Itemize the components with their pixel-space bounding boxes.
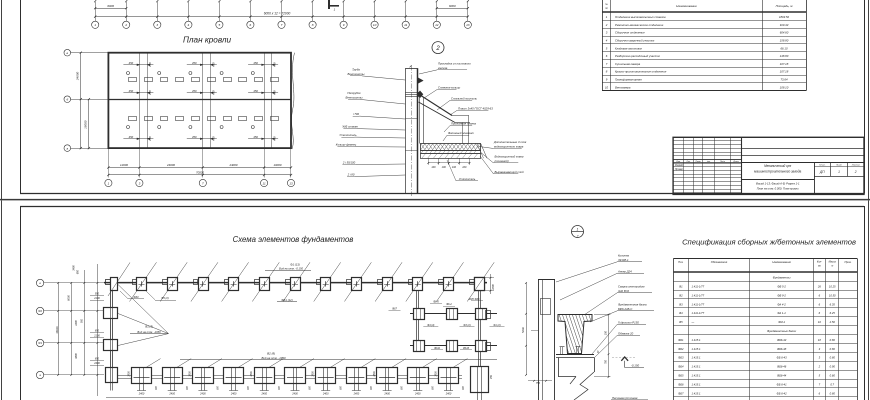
svg-text:ФВ 5-2: ФВ 5-2 bbox=[777, 285, 786, 289]
svg-text:4: 4 bbox=[188, 23, 190, 27]
svg-text:План кровли: План кровли bbox=[183, 35, 231, 44]
svg-text:2400: 2400 bbox=[93, 362, 100, 365]
svg-text:Разборочно-расходочный участок: Разборочно-расходочный участок bbox=[615, 54, 661, 58]
svg-text:5: 5 bbox=[819, 374, 821, 378]
svg-text:450: 450 bbox=[253, 135, 258, 139]
svg-text:Дата: Дата bbox=[732, 161, 739, 163]
svg-text:Ф6-6: Ф6-6 bbox=[433, 300, 439, 303]
svg-text:12: 12 bbox=[435, 23, 439, 27]
svg-text:10: 10 bbox=[373, 23, 377, 27]
svg-text:1.415.1: 1.415.1 bbox=[692, 365, 701, 369]
svg-text:1: 1 bbox=[606, 15, 608, 19]
svg-text:1800: 1800 bbox=[127, 371, 130, 377]
svg-text:600: 600 bbox=[218, 385, 220, 390]
svg-text:в: в bbox=[67, 51, 69, 55]
svg-text:1893.50: 1893.50 bbox=[779, 15, 790, 19]
svg-text:6000 x 12 = 72000: 6000 x 12 = 72000 bbox=[264, 12, 291, 16]
svg-text:ФБ1 (12): ФБ1 (12) bbox=[281, 298, 292, 302]
svg-text:850: 850 bbox=[95, 330, 100, 333]
svg-text:600: 600 bbox=[279, 385, 281, 390]
svg-text:8: 8 bbox=[312, 23, 314, 27]
svg-text:107.18: 107.18 bbox=[780, 62, 789, 66]
svg-text:Прижимная планка: Прижимная планка bbox=[451, 122, 476, 126]
svg-text:Утеплитель: Утеплитель bbox=[459, 177, 476, 181]
svg-text:1.415.1: 1.415.1 bbox=[692, 347, 701, 351]
svg-text:Лист: Лист bbox=[694, 161, 701, 163]
svg-text:т: т bbox=[831, 264, 833, 267]
svg-text:600: 600 bbox=[248, 385, 250, 390]
svg-text:1600: 1600 bbox=[75, 320, 78, 326]
svg-text:Поз.: Поз. bbox=[678, 260, 683, 264]
svg-text:1800: 1800 bbox=[250, 371, 253, 377]
svg-text:6000: 6000 bbox=[449, 4, 456, 8]
svg-text:1: 1 bbox=[838, 170, 840, 174]
svg-text:Сборочное отделение: Сборочное отделение bbox=[615, 31, 645, 35]
svg-text:Отделение высоковольтных станк: Отделение высоковольтных станков bbox=[615, 15, 666, 19]
svg-text:2400: 2400 bbox=[230, 392, 237, 395]
svg-text:План на отм. 0.000; План кровл: План на отм. 0.000; План кровли bbox=[757, 186, 799, 190]
svg-text:Кол-: Кол- bbox=[817, 261, 822, 264]
svg-text:ДП: ДП bbox=[819, 170, 825, 174]
svg-text:10: 10 bbox=[605, 85, 609, 89]
svg-text:ФБ6: ФБ6 bbox=[678, 382, 684, 386]
svg-text:Ф1 (3): Ф1 (3) bbox=[145, 325, 153, 329]
svg-text:Ф1 (13): Ф1 (13) bbox=[290, 262, 300, 266]
svg-text:БФ6-24Б-С: БФ6-24Б-С bbox=[618, 307, 633, 311]
svg-text:450: 450 bbox=[253, 61, 258, 65]
svg-text:Разраб.: Разраб. bbox=[675, 165, 684, 167]
svg-text:(основной): (основной) bbox=[495, 159, 509, 163]
svg-text:Трансформаторная: Трансформаторная bbox=[615, 78, 642, 82]
svg-text:6000: 6000 bbox=[107, 4, 114, 8]
svg-text:во: во bbox=[818, 264, 821, 267]
svg-text:машиностроительного завода: машиностроительного завода bbox=[754, 169, 801, 173]
svg-text:Фундаментные балки: Фундаментные балки bbox=[767, 329, 797, 333]
svg-text:2400: 2400 bbox=[199, 392, 206, 395]
svg-text:-0.150: -0.150 bbox=[631, 363, 640, 367]
svg-text:Песчаная (сточная: Песчаная (сточная bbox=[612, 396, 638, 400]
svg-text:450: 450 bbox=[490, 374, 493, 379]
svg-text:Ф67: Ф67 bbox=[392, 308, 397, 311]
svg-text:550: 550 bbox=[95, 292, 100, 295]
svg-text:Схема элементов фундаментов: Схема элементов фундаментов bbox=[233, 235, 354, 244]
svg-text:450: 450 bbox=[192, 61, 197, 65]
svg-text:24000: 24000 bbox=[76, 71, 80, 81]
svg-text:ФА 4-2: ФА 4-2 bbox=[777, 302, 786, 306]
svg-text:Обмазка 20: Обмазка 20 bbox=[618, 332, 634, 336]
svg-text:450: 450 bbox=[148, 136, 152, 141]
svg-text:5200: 5200 bbox=[521, 327, 525, 333]
svg-text:100: 100 bbox=[462, 166, 467, 169]
svg-text:158.80: 158.80 bbox=[780, 39, 789, 43]
svg-text:1.411-1/77: 1.411-1/77 bbox=[692, 311, 705, 315]
svg-text:Фасад 1-13; Фасад А-В; Разрез: Фасад 1-13; Фасад А-В; Разрез 1-1 bbox=[756, 181, 800, 185]
svg-text:5: 5 bbox=[606, 46, 608, 50]
svg-text:Ф2 (9): Ф2 (9) bbox=[267, 351, 275, 355]
svg-text:Площадь, м: Площадь, м bbox=[776, 4, 793, 8]
svg-text:600: 600 bbox=[371, 385, 373, 390]
svg-text:2400: 2400 bbox=[383, 392, 390, 395]
svg-text:а: а bbox=[66, 146, 68, 150]
svg-text:12000: 12000 bbox=[120, 163, 128, 167]
svg-text:Ф5: Ф5 bbox=[679, 320, 683, 324]
svg-text:0.80: 0.80 bbox=[830, 347, 836, 351]
svg-text:600: 600 bbox=[187, 385, 189, 390]
svg-text:ФМ-1: ФМ-1 bbox=[778, 320, 785, 324]
svg-text:Масса: Масса bbox=[829, 261, 837, 264]
svg-text:Ф4: Ф4 bbox=[679, 311, 683, 315]
svg-text:6.25: 6.25 bbox=[830, 311, 836, 315]
svg-text:1.411-1/77: 1.411-1/77 bbox=[692, 302, 705, 306]
svg-text:108.10: 108.10 bbox=[780, 85, 789, 89]
svg-text:600: 600 bbox=[340, 385, 342, 390]
svg-text:450: 450 bbox=[211, 90, 215, 95]
svg-text:ФБ 6-41: ФБ 6-41 bbox=[777, 382, 788, 386]
svg-text:2: 2 bbox=[435, 46, 440, 52]
svg-text:0.7: 0.7 bbox=[830, 382, 834, 386]
svg-text:450: 450 bbox=[129, 61, 134, 65]
svg-text:ФБ6-43: ФБ6-43 bbox=[777, 338, 787, 342]
svg-text:73.64: 73.64 bbox=[781, 78, 788, 82]
svg-text:1800: 1800 bbox=[312, 371, 315, 377]
svg-text:ФБ1: ФБ1 bbox=[678, 338, 684, 342]
svg-text:6: 6 bbox=[250, 23, 252, 27]
svg-text:2: 2 bbox=[854, 170, 857, 174]
svg-text:1.411-1/77: 1.411-1/77 bbox=[692, 285, 705, 289]
svg-text:Кладовая заготовок: Кладовая заготовок bbox=[615, 46, 643, 50]
svg-text:500: 500 bbox=[81, 318, 84, 323]
svg-text:6.35: 6.35 bbox=[830, 302, 836, 306]
svg-text:водозащитного ковра: водозащитного ковра bbox=[494, 144, 524, 148]
svg-text:Лист: Лист bbox=[835, 165, 842, 167]
svg-text:б: б bbox=[66, 97, 68, 101]
svg-text:11: 11 bbox=[404, 23, 407, 27]
svg-text:10.50: 10.50 bbox=[829, 293, 836, 297]
svg-text:2: 2 bbox=[124, 23, 127, 27]
svg-text:9800: 9800 bbox=[75, 353, 78, 359]
svg-text:6: 6 bbox=[819, 391, 821, 395]
svg-text:Ж/Б стакан: Ж/Б стакан bbox=[341, 125, 358, 129]
svg-text:Выравнивающий слой: Выравнивающий слой bbox=[495, 170, 524, 174]
svg-text:Механический цех: Механический цех bbox=[764, 164, 792, 168]
svg-text:ФБ6-46: ФБ6-46 bbox=[777, 365, 787, 369]
svg-text:107.18: 107.18 bbox=[780, 70, 789, 74]
svg-text:70000: 70000 bbox=[196, 171, 204, 175]
svg-text:3: 3 bbox=[606, 31, 608, 35]
svg-text:26: 26 bbox=[817, 285, 821, 289]
svg-text:Утеплитель: Утеплитель bbox=[339, 133, 357, 137]
svg-text:ФБ4: ФБ4 bbox=[678, 365, 684, 369]
svg-text:100: 100 bbox=[431, 166, 436, 169]
svg-text:1.415.1: 1.415.1 bbox=[692, 391, 701, 395]
svg-text:604.60: 604.60 bbox=[780, 31, 789, 35]
svg-text:9: 9 bbox=[606, 78, 608, 82]
svg-text:3: 3 bbox=[139, 181, 141, 185]
svg-text:850: 850 bbox=[95, 357, 100, 360]
svg-text:450: 450 bbox=[192, 135, 197, 139]
svg-text:100: 100 bbox=[452, 166, 457, 169]
svg-text:в: в bbox=[39, 282, 41, 285]
svg-text:0.60: 0.60 bbox=[830, 374, 836, 378]
svg-text:10.25: 10.25 bbox=[829, 285, 836, 289]
svg-text:Сборочно-сварочный участок: Сборочно-сварочный участок bbox=[615, 39, 655, 43]
svg-text:Ф6-2: Ф6-2 bbox=[446, 303, 452, 306]
svg-text:10000: 10000 bbox=[273, 163, 281, 167]
svg-text:450: 450 bbox=[273, 90, 277, 95]
svg-text:910.43: 910.43 bbox=[780, 23, 789, 27]
svg-text:6: 6 bbox=[606, 54, 608, 58]
svg-text:66.10: 66.10 bbox=[781, 46, 788, 50]
svg-text:Ф1: Ф1 bbox=[679, 285, 683, 289]
svg-text:1800: 1800 bbox=[434, 371, 437, 377]
svg-text:ФБ6-44: ФБ6-44 bbox=[777, 374, 787, 378]
svg-text:2.50: 2.50 bbox=[829, 320, 836, 324]
svg-text:600: 600 bbox=[156, 385, 158, 390]
svg-text:1: 1 bbox=[94, 23, 96, 27]
svg-text:ФБ6-48: ФБ6-48 bbox=[777, 347, 787, 351]
svg-text:2: 2 bbox=[818, 365, 821, 369]
svg-text:2 i 80: 2 i 80 bbox=[347, 173, 355, 177]
svg-text:Ф2: Ф2 bbox=[679, 293, 683, 297]
svg-text:Ф5 (2): Ф5 (2) bbox=[161, 296, 169, 300]
svg-text:б/2: б/2 bbox=[38, 309, 42, 313]
svg-text:2400: 2400 bbox=[322, 392, 329, 395]
svg-text:600: 600 bbox=[402, 385, 404, 390]
svg-text:Стальной костыль: Стальной костыль bbox=[451, 96, 478, 100]
svg-text:600: 600 bbox=[432, 385, 434, 390]
svg-text:36000: 36000 bbox=[55, 326, 59, 334]
svg-text:ФБ 6-42: ФБ 6-42 bbox=[777, 391, 788, 395]
svg-text:—: — bbox=[691, 321, 695, 324]
svg-text:Краско-приготовительное отделе: Краско-приготовительное отделение bbox=[615, 70, 667, 74]
svg-text:пп: пп bbox=[605, 7, 608, 10]
svg-text:i 700: i 700 bbox=[353, 112, 360, 116]
svg-text:3: 3 bbox=[819, 347, 821, 351]
svg-text:450: 450 bbox=[129, 89, 134, 93]
svg-text:1005: 1005 bbox=[468, 298, 474, 301]
svg-text:6: 6 bbox=[819, 293, 821, 297]
svg-text:450: 450 bbox=[129, 135, 134, 139]
svg-text:1.415.1: 1.415.1 bbox=[692, 382, 701, 386]
svg-text:Обозначение: Обозначение bbox=[711, 260, 728, 264]
svg-text:750: 750 bbox=[536, 382, 541, 385]
svg-text:Вентшахты: Вентшахты bbox=[348, 72, 365, 76]
svg-text:Вентшахты: Вентшахты bbox=[346, 95, 363, 99]
svg-text:8: 8 bbox=[606, 70, 608, 74]
svg-text:450: 450 bbox=[273, 62, 277, 67]
svg-text:148.80: 148.80 bbox=[780, 54, 789, 58]
svg-text:6000: 6000 bbox=[66, 295, 70, 301]
svg-text:2: 2 bbox=[576, 235, 579, 239]
svg-text:6: 6 bbox=[819, 311, 821, 315]
svg-text:0.80: 0.80 bbox=[830, 356, 836, 360]
svg-text:2400: 2400 bbox=[261, 392, 268, 395]
svg-text:1000: 1000 bbox=[492, 284, 495, 290]
svg-text:ФА 1-1: ФА 1-1 bbox=[777, 311, 786, 315]
svg-text:ФБ7: ФБ7 bbox=[678, 391, 684, 395]
svg-text:18: 18 bbox=[818, 338, 821, 342]
svg-text:ФВ 9-2: ФВ 9-2 bbox=[777, 293, 786, 297]
svg-text:5: 5 bbox=[219, 23, 221, 27]
svg-text:11: 11 bbox=[263, 181, 266, 185]
svg-text:1800: 1800 bbox=[189, 371, 192, 377]
svg-text:3: 3 bbox=[819, 356, 821, 360]
svg-text:450: 450 bbox=[148, 90, 152, 95]
svg-text:13: 13 bbox=[289, 181, 293, 185]
svg-text:Подп: Подп bbox=[720, 160, 726, 163]
svg-text:800: 800 bbox=[77, 269, 80, 274]
svg-text:ЗК108-1: ЗК108-1 bbox=[618, 258, 629, 262]
svg-text:ФБ5: ФБ5 bbox=[678, 374, 684, 378]
svg-text:100: 100 bbox=[442, 166, 447, 169]
svg-text:600: 600 bbox=[310, 385, 312, 390]
svg-text:24000: 24000 bbox=[228, 163, 237, 167]
svg-text:150: 150 bbox=[604, 330, 607, 335]
svg-text:4: 4 bbox=[606, 39, 608, 43]
svg-text:2400: 2400 bbox=[445, 392, 452, 395]
svg-text:0.90: 0.90 bbox=[830, 365, 836, 369]
svg-text:2100: 2100 bbox=[93, 297, 100, 300]
svg-text:3400: 3400 bbox=[73, 265, 76, 271]
svg-text:Кольцо-фланец: Кольцо-фланец bbox=[336, 143, 357, 147]
svg-text:2 i 50/100: 2 i 50/100 bbox=[342, 161, 356, 165]
svg-text:1.415.1: 1.415.1 bbox=[692, 374, 701, 378]
svg-text:2400: 2400 bbox=[353, 392, 360, 395]
svg-text:450: 450 bbox=[211, 62, 215, 67]
svg-text:Наименование: Наименование bbox=[772, 260, 791, 264]
svg-text:Ф3: Ф3 bbox=[679, 302, 683, 306]
svg-text:1: 1 bbox=[577, 227, 579, 231]
svg-text:2400: 2400 bbox=[414, 392, 421, 395]
svg-text:2400: 2400 bbox=[138, 392, 145, 395]
svg-text:24000: 24000 bbox=[166, 163, 175, 167]
svg-text:450: 450 bbox=[148, 62, 152, 67]
svg-text:450: 450 bbox=[211, 136, 215, 141]
svg-text:Вентамера: Вентамера bbox=[615, 85, 631, 89]
svg-text:1.415.1: 1.415.1 bbox=[692, 338, 701, 342]
svg-text:1.411-1/77: 1.411-1/77 bbox=[692, 293, 705, 297]
svg-text:Листов: Листов bbox=[851, 165, 861, 167]
svg-text:Сушильная камера: Сушильная камера bbox=[615, 62, 641, 66]
svg-text:Фасонный элемент: Фасонный элемент bbox=[448, 131, 475, 135]
svg-text:9: 9 bbox=[343, 23, 345, 27]
svg-text:7: 7 bbox=[606, 62, 608, 66]
svg-text:13: 13 bbox=[466, 23, 470, 27]
svg-text:700: 700 bbox=[604, 359, 607, 364]
svg-text:Стад.: Стад. bbox=[819, 164, 826, 167]
svg-text:7: 7 bbox=[819, 382, 821, 386]
svg-text:7: 7 bbox=[202, 181, 204, 185]
svg-text:Наименование: Наименование bbox=[676, 4, 697, 8]
svg-text:6: 6 bbox=[819, 302, 821, 306]
svg-text:Фундаменты: Фундаменты bbox=[773, 276, 791, 280]
svg-text:Вид на отм. -0.150: Вид на отм. -0.150 bbox=[279, 267, 303, 271]
svg-text:Изм: Изм bbox=[676, 161, 680, 163]
svg-text:ФБ2: ФБ2 bbox=[678, 347, 684, 351]
svg-text:ФБ 6-43: ФБ 6-43 bbox=[777, 356, 788, 360]
svg-text:18000: 18000 bbox=[84, 120, 88, 129]
svg-text:б/1: б/1 bbox=[38, 341, 42, 345]
svg-text:450: 450 bbox=[273, 136, 277, 141]
svg-text:1800: 1800 bbox=[373, 371, 376, 377]
svg-text:а: а bbox=[39, 374, 41, 377]
svg-text:Гидроизол Р150: Гидроизол Р150 bbox=[618, 321, 639, 325]
svg-text:2100: 2100 bbox=[93, 335, 100, 338]
svg-text:Ремонтно-механическое отделени: Ремонтно-механическое отделение bbox=[615, 23, 664, 27]
svg-text:Э42 В=6: Э42 В=6 bbox=[618, 289, 629, 293]
svg-text:0.80: 0.80 bbox=[830, 391, 836, 395]
svg-text:450: 450 bbox=[253, 89, 258, 93]
svg-text:Пласт 3х45 ГОСТ 4029-63: Пласт 3х45 ГОСТ 4029-63 bbox=[458, 106, 493, 110]
svg-text:10: 10 bbox=[818, 320, 821, 324]
svg-text:Спецификация сборных ж/бетонны: Спецификация сборных ж/бетонных элементо… bbox=[682, 237, 856, 246]
svg-text:Прим.: Прим. bbox=[844, 261, 851, 264]
svg-text:1.415.1: 1.415.1 bbox=[692, 356, 701, 360]
svg-text:Вид на отм. -1950: Вид на отм. -1950 bbox=[137, 330, 161, 334]
svg-text:2400: 2400 bbox=[168, 392, 175, 395]
svg-text:7: 7 bbox=[281, 23, 283, 27]
svg-text:1: 1 bbox=[334, 8, 336, 12]
svg-text:№: № bbox=[605, 3, 608, 6]
svg-text:600: 600 bbox=[463, 385, 465, 390]
svg-text:Стяжное кольцо: Стяжное кольцо bbox=[438, 86, 461, 90]
svg-text:0.80: 0.80 bbox=[830, 338, 836, 342]
svg-text:железа: железа bbox=[437, 66, 448, 70]
svg-text:ФБ3: ФБ3 bbox=[678, 356, 684, 360]
svg-text:2: 2 bbox=[605, 23, 608, 27]
svg-text:3: 3 bbox=[156, 23, 158, 27]
svg-text:2400: 2400 bbox=[291, 392, 298, 395]
svg-text:Провер.: Провер. bbox=[675, 169, 684, 171]
svg-text:Анкер Д24: Анкер Д24 bbox=[617, 269, 632, 273]
svg-text:1: 1 bbox=[108, 181, 110, 185]
svg-text:450: 450 bbox=[192, 89, 197, 93]
